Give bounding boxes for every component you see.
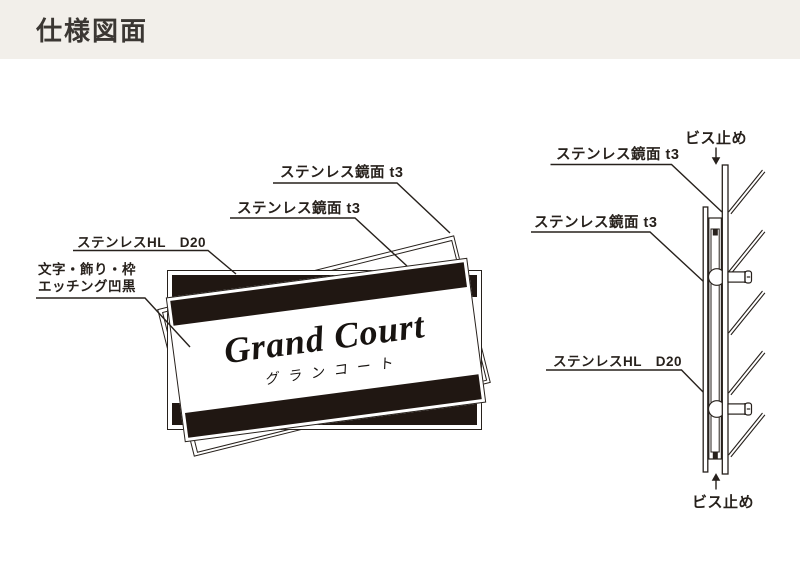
label-screw-top: ビス止め (685, 129, 747, 148)
label-mirror-back-side: ステンレス鏡面 t3 (556, 146, 679, 165)
wall-hatch-icon (729, 170, 765, 457)
spacer-screw-top-icon (713, 230, 718, 236)
label-etching: 文字・飾り・枠 エッチング凹黒 (38, 261, 136, 296)
standoff-barrel-bottom (709, 401, 726, 418)
label-mirror-front-side: ステンレス鏡面 t3 (534, 214, 657, 233)
side-back-plate (722, 165, 728, 474)
page-title: 仕様図面 (36, 11, 148, 48)
leader-mirror-front-side (531, 232, 704, 282)
label-hl-front: ステンレスHL D20 (77, 234, 206, 251)
side-front-plate (703, 207, 708, 472)
label-etching-line1: 文字・飾り・枠 (38, 261, 136, 278)
page-header: 仕様図面 (0, 0, 800, 59)
label-mirror-mid: ステンレス鏡面 t3 (237, 200, 360, 219)
leader-mirror-back-side (551, 165, 723, 213)
screw-arrow-up-icon (713, 475, 719, 490)
screw-arrow-down-icon (713, 148, 719, 164)
standoff-bolt-bottom (728, 403, 752, 415)
standoff-barrel-top (709, 269, 726, 286)
side-view-drawing (703, 148, 765, 490)
label-screw-bottom: ビス止め (692, 493, 754, 512)
label-etching-line2: エッチング凹黒 (38, 278, 136, 295)
spec-drawing-page: 仕様図面 Grand Court グランコート ステンレス鏡面 t3 ステンレス… (0, 0, 800, 580)
label-mirror-top: ステンレス鏡面 t3 (280, 164, 403, 183)
label-hl-side: ステンレスHL D20 (553, 353, 682, 370)
side-spacer-inner (711, 229, 719, 452)
spacer-screw-bottom-icon (713, 453, 718, 459)
leader-hl-side (546, 370, 707, 396)
side-spacer-frame (709, 218, 722, 459)
standoff-bolt-top (728, 271, 752, 283)
